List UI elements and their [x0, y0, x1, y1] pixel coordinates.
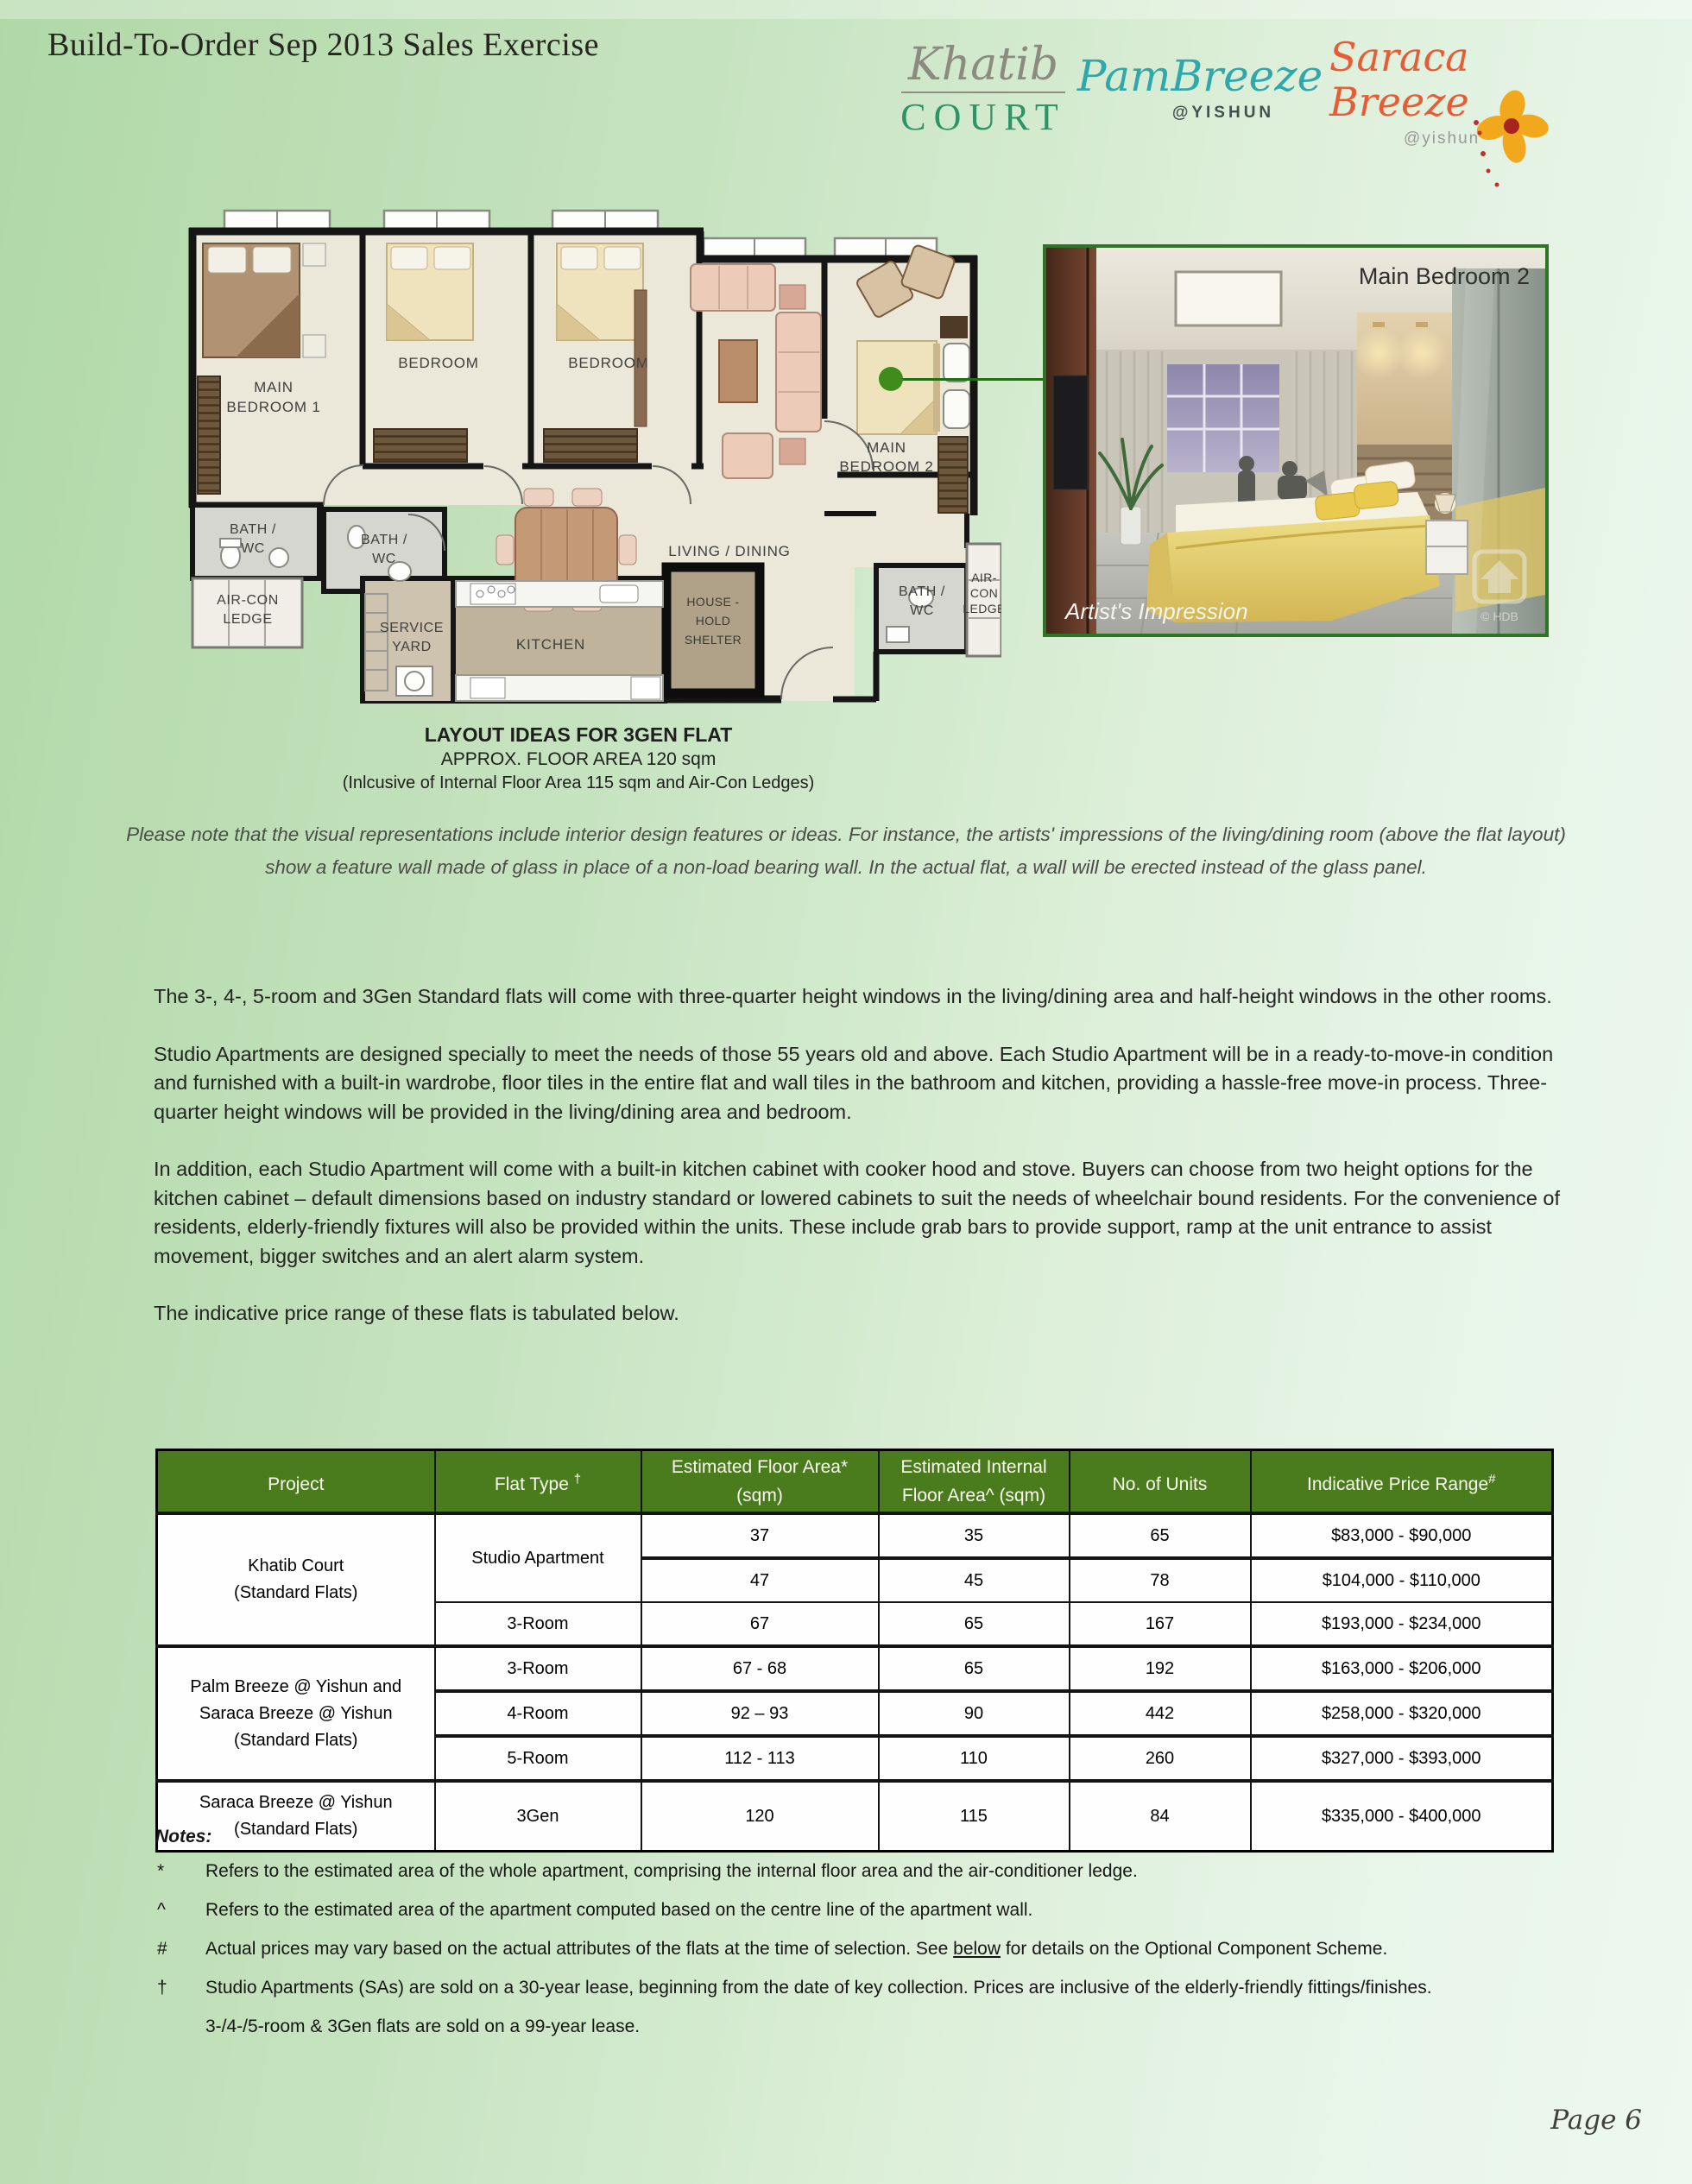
floor-area-cell: 67 - 68 [641, 1646, 879, 1691]
units-cell: 167 [1070, 1602, 1251, 1646]
note-item: ^ Refers to the estimated area of the ap… [155, 1895, 1575, 1926]
price-cell: $327,000 - $393,000 [1251, 1736, 1553, 1781]
palm-yishun-text: @YISHUN [1131, 104, 1316, 123]
svg-text:AIR-: AIR- [971, 571, 997, 584]
svg-text:BEDROOM: BEDROOM [398, 355, 478, 371]
flat-type-cell: 3-Room [435, 1602, 641, 1646]
callout-line [891, 378, 1045, 381]
plan-caption-area: APPROX. FLOOR AREA 120 sqm [207, 748, 950, 772]
note-symbol: * [155, 1856, 205, 1887]
flat-type-cell: Studio Apartment [435, 1513, 641, 1602]
logo-palm-breeze: Pa mBreeze @YISHUN [1084, 52, 1316, 123]
svg-text:BEDROOM 2: BEDROOM 2 [839, 458, 933, 475]
col-internal-area: Estimated Internal Floor Area^ (sqm) [879, 1450, 1070, 1514]
plan-caption-title: LAYOUT IDEAS FOR 3GEN FLAT [207, 722, 950, 748]
note-text: Actual prices may vary based on the actu… [205, 1934, 1575, 1965]
table-row: Khatib Court (Standard Flats) Studio Apa… [157, 1513, 1553, 1558]
internal-area-cell: 90 [879, 1691, 1070, 1736]
svg-text:WC: WC [372, 552, 396, 566]
internal-area-cell: 65 [879, 1646, 1070, 1691]
photo-caption: Artist's Impression [1064, 598, 1248, 624]
flat-type-cell: 5-Room [435, 1736, 641, 1781]
callout-dot [879, 367, 903, 391]
note-item: 3-/4-/5-room & 3Gen flats are sold on a … [155, 2011, 1575, 2042]
photo-title: Main Bedroom 2 [1359, 263, 1530, 289]
note-item: * Refers to the estimated area of the wh… [155, 1856, 1575, 1887]
price-cell: $163,000 - $206,000 [1251, 1646, 1553, 1691]
svg-text:SHELTER: SHELTER [685, 633, 742, 647]
table-row: Palm Breeze @ Yishun and Saraca Breeze @… [157, 1646, 1553, 1691]
svg-text:MAIN: MAIN [867, 439, 906, 456]
page-number: Page 6 [1550, 2105, 1642, 2136]
svg-text:YARD: YARD [392, 640, 432, 654]
price-cell: $104,000 - $110,000 [1251, 1558, 1553, 1602]
household-shelter-room [666, 567, 760, 693]
logo-khatib-court: Khatib COURT [889, 40, 1077, 138]
internal-area-cell: 110 [879, 1736, 1070, 1781]
note-text: Studio Apartments (SAs) are sold on a 30… [205, 1973, 1575, 2004]
units-cell: 65 [1070, 1513, 1251, 1558]
note-text: Refers to the estimated area of the whol… [205, 1856, 1575, 1887]
note-symbol: ^ [155, 1895, 205, 1926]
body-text: The 3-, 4-, 5-room and 3Gen Standard fla… [154, 982, 1582, 1357]
note-text: Refers to the estimated area of the apar… [205, 1895, 1575, 1926]
internal-area-cell: 65 [879, 1602, 1070, 1646]
svg-text:AIR-CON: AIR-CON [217, 593, 279, 608]
paragraph-studio-apartments: Studio Apartments are designed specially… [154, 1040, 1582, 1127]
col-flat-type: Flat Type † [435, 1450, 641, 1514]
internal-area-cell: 45 [879, 1558, 1070, 1602]
svg-text:BATH /: BATH / [899, 584, 945, 599]
table-header-row: Project Flat Type † Estimated Floor Area… [157, 1450, 1553, 1514]
svg-text:LEDGE: LEDGE [963, 602, 1001, 615]
col-units: No. of Units [1070, 1450, 1251, 1514]
note-text-post: for details on the Optional Component Sc… [1001, 1939, 1387, 1959]
floorplan: MAIN BEDROOM 1 BEDROOM BEDROOM MAIN BEDR… [186, 207, 1001, 704]
bedroom-photo: Main Bedroom 2 Artist's Impression © HDB [1043, 244, 1549, 637]
svg-text:BEDROOM: BEDROOM [568, 355, 648, 371]
aircon-ledge-right [967, 544, 1001, 656]
floor-area-cell: 67 [641, 1602, 879, 1646]
disclaimer-note: Please note that the visual representati… [105, 818, 1587, 884]
paragraph-windows: The 3-, 4-, 5-room and 3Gen Standard fla… [154, 982, 1582, 1012]
floor-area-cell: 47 [641, 1558, 879, 1602]
svg-text:LEDGE: LEDGE [223, 612, 272, 627]
price-cell: $258,000 - $320,000 [1251, 1691, 1553, 1736]
notes-title: Notes: [155, 1827, 1575, 1847]
project-cell: Khatib Court (Standard Flats) [157, 1513, 435, 1646]
floor-area-cell: 112 - 113 [641, 1736, 879, 1781]
units-cell: 260 [1070, 1736, 1251, 1781]
svg-text:CON: CON [970, 586, 998, 600]
flat-type-cell: 4-Room [435, 1691, 641, 1736]
floor-area-cell: 92 – 93 [641, 1691, 879, 1736]
note-item: † Studio Apartments (SAs) are sold on a … [155, 1973, 1575, 2004]
note-text-pre: Actual prices may vary based on the actu… [205, 1939, 953, 1959]
top-light-band [0, 0, 1692, 19]
units-cell: 78 [1070, 1558, 1251, 1602]
project-cell: Palm Breeze @ Yishun and Saraca Breeze @… [157, 1646, 435, 1781]
khatib-divider [901, 92, 1065, 93]
note-symbol: † [155, 1973, 205, 2004]
svg-text:KITCHEN: KITCHEN [516, 636, 585, 653]
below-link[interactable]: below [953, 1939, 1001, 1959]
paragraph-kitchen-cabinet: In addition, each Studio Apartment will … [154, 1155, 1582, 1271]
svg-text:WC: WC [910, 603, 934, 618]
note-text: 3-/4-/5-room & 3Gen flats are sold on a … [205, 2011, 1575, 2042]
page-title: Build-To-Order Sep 2013 Sales Exercise [47, 26, 599, 64]
internal-area-cell: 35 [879, 1513, 1070, 1558]
plan-caption: LAYOUT IDEAS FOR 3GEN FLAT APPROX. FLOOR… [207, 722, 950, 795]
price-cell: $83,000 - $90,000 [1251, 1513, 1553, 1558]
paragraph-price-intro: The indicative price range of these flat… [154, 1299, 1582, 1329]
svg-text:HOLD: HOLD [696, 614, 731, 628]
note-item: # Actual prices may vary based on the ac… [155, 1934, 1575, 1965]
floor-area-cell: 37 [641, 1513, 879, 1558]
svg-text:WC: WC [241, 541, 265, 556]
note-symbol [155, 2011, 205, 2042]
palm-script-left: Pa [1077, 52, 1130, 100]
col-project: Project [157, 1450, 435, 1514]
khatib-caps-text: COURT [889, 97, 1077, 138]
units-cell: 442 [1070, 1691, 1251, 1736]
svg-text:SERVICE: SERVICE [380, 621, 444, 635]
hdb-watermark-text: © HDB [1480, 609, 1518, 623]
note-symbol: # [155, 1934, 205, 1965]
document-page: Build-To-Order Sep 2013 Sales Exercise K… [0, 0, 1692, 2184]
units-cell: 192 [1070, 1646, 1251, 1691]
palm-script-right: mBreeze [1130, 52, 1323, 100]
saraca-flower-icon [1459, 88, 1554, 192]
svg-text:BEDROOM 1: BEDROOM 1 [226, 399, 320, 415]
khatib-script-text: Khatib [889, 40, 1077, 90]
col-floor-area: Estimated Floor Area* (sqm) [641, 1450, 879, 1514]
flat-type-cell: 3-Room [435, 1646, 641, 1691]
logo-saraca-breeze: Saraca Breeze @yishun [1329, 35, 1571, 148]
price-cell: $193,000 - $234,000 [1251, 1602, 1553, 1646]
svg-text:BATH /: BATH / [230, 522, 276, 537]
svg-text:BATH /: BATH / [361, 533, 407, 547]
plan-caption-detail: (Inlcusive of Internal Floor Area 115 sq… [207, 772, 950, 795]
svg-text:HOUSE -: HOUSE - [686, 595, 739, 609]
col-price-range: Indicative Price Range# [1251, 1450, 1553, 1514]
notes-section: Notes: * Refers to the estimated area of… [155, 1827, 1575, 2050]
price-table: Project Flat Type † Estimated Floor Area… [155, 1449, 1554, 1853]
svg-text:MAIN: MAIN [254, 379, 294, 395]
svg-text:LIVING / DINING: LIVING / DINING [668, 543, 790, 559]
